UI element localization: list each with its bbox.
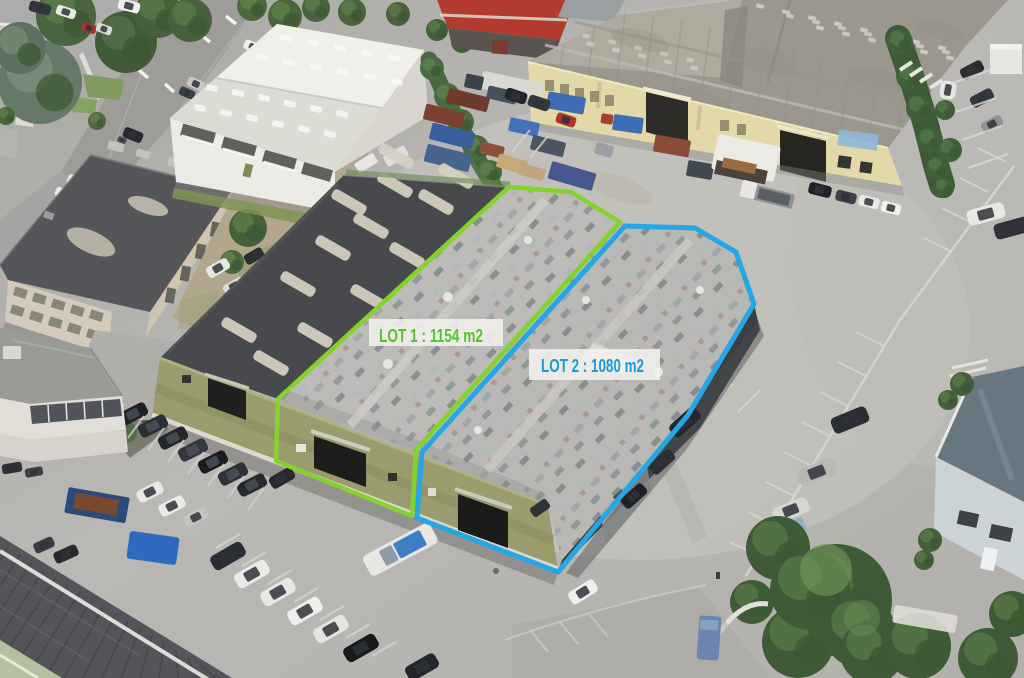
svg-text:LOT 2 : 1080 m2: LOT 2 : 1080 m2	[541, 356, 644, 376]
svg-text:LOT 1 : 1154 m2: LOT 1 : 1154 m2	[379, 326, 483, 346]
